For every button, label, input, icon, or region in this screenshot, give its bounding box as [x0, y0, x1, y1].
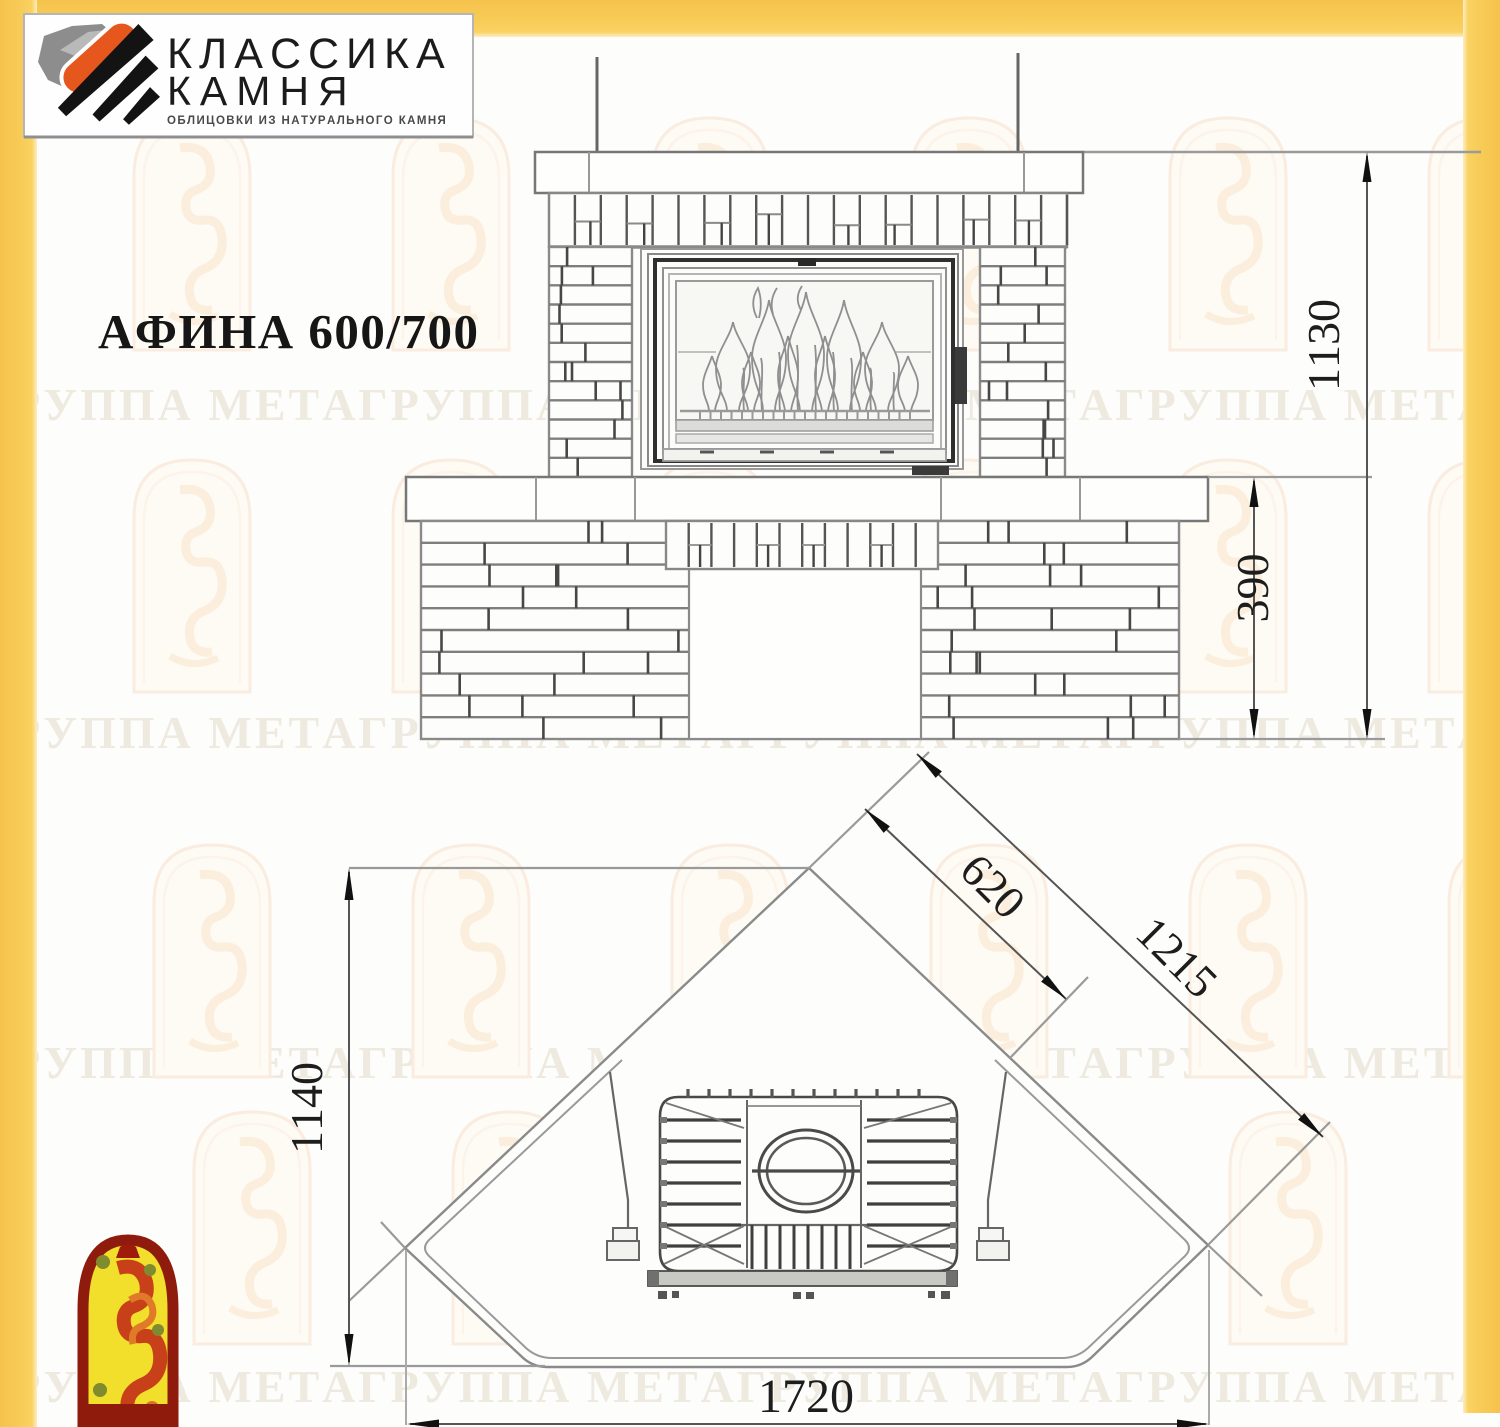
svg-text:1130: 1130	[1298, 299, 1349, 391]
svg-text:ОБЛИЦОВКИ ИЗ НАТУРАЛЬНОГО КАМН: ОБЛИЦОВКИ ИЗ НАТУРАЛЬНОГО КАМНЯ	[167, 115, 447, 127]
svg-text:КАМНЯ: КАМНЯ	[167, 68, 357, 114]
svg-text:АФИНА 600/700: АФИНА 600/700	[98, 304, 479, 359]
svg-text:390: 390	[1227, 554, 1278, 623]
svg-text:1720: 1720	[758, 1370, 854, 1423]
svg-text:1140: 1140	[281, 1062, 332, 1154]
svg-text:ГРУППА МЕТАГРУППА МЕТАГРУППА М: ГРУППА МЕТАГРУППА МЕТАГРУППА МЕТАГРУППА …	[0, 1361, 1500, 1412]
